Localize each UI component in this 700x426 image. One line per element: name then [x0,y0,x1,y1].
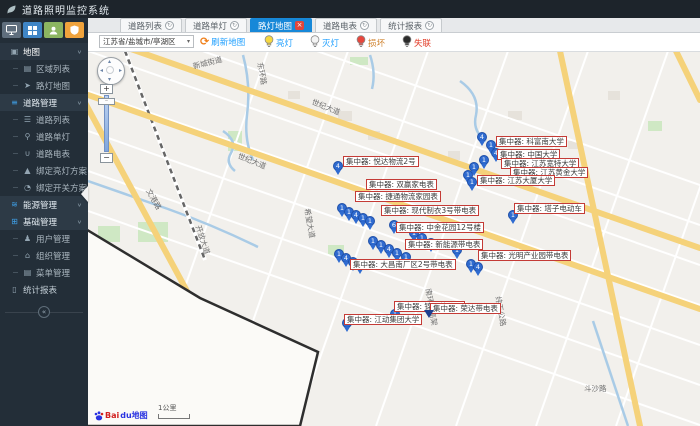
sidebar: ▣地图∨▤区域列表➤路灯地图≡道路管理∨☰道路列表⚲道路单灯∪道路电表▲绑定亮灯… [0,18,88,426]
sidebar-item-label: 绑定亮灯方案 [36,165,87,177]
map-icon: ▣ [9,47,20,56]
legend-broken[interactable]: 损坏 [356,35,385,51]
sidebar-item-label: 道路单灯 [36,131,70,143]
map-pin[interactable]: 4 [477,132,487,142]
road-name-label: 新城街道 [192,54,224,72]
concentrator-label[interactable]: 集中器: 光明产业园带电表 [478,250,571,261]
concentrator-label[interactable]: 集中器: 荣达带电表 [430,303,501,314]
legend-label: 亮灯 [276,37,293,49]
region-select[interactable]: 江苏省/盐城市/亭湖区 ▾ [99,35,194,48]
tab-label: 统计报表 [388,20,422,32]
sidebar-item-bind-switch-plan[interactable]: ◔绑定开关方案 [0,179,88,196]
tab-refresh-icon[interactable]: ↻ [360,21,369,30]
concentrator-label[interactable]: 集中器: 双赢家电表 [366,179,437,190]
legend-label: 灭灯 [322,37,339,49]
map-pin[interactable]: 1 [365,216,375,226]
sidebar-item-label: 道路管理 [23,97,57,109]
user-quick-button[interactable] [44,22,63,38]
on-bulb-icon [264,35,274,51]
sidebar-item-report[interactable]: ▯统计报表 [0,281,88,298]
concentrator-label[interactable]: 集中器: 塔子电动车 [514,203,585,214]
user-manage-icon: ♟ [22,234,33,243]
collapse-arrow-icon[interactable]: « [38,306,50,318]
sidebar-item-base-manage[interactable]: ⊞基础管理∨ [0,213,88,230]
concentrator-label[interactable]: 集中器: 悦达物流2号 [343,156,419,167]
map-toolbar: 江苏省/盐城市/亭湖区 ▾ ⟳ 刷新地图 亮灯灭灯损坏失联 [88,33,700,52]
sidebar-item-label: 道路列表 [36,114,70,126]
sidebar-item-label: 路灯地图 [36,80,70,92]
sidebar-item-label: 道路电表 [36,148,70,160]
chevron-down-icon: ∨ [77,202,82,208]
sidebar-item-label: 用户管理 [36,233,70,245]
report-icon: ▯ [9,285,20,294]
concentrator-label[interactable]: 集中器: 江苏大厦大学 [477,175,555,186]
sidebar-item-org-manage[interactable]: ⌂组织管理 [0,247,88,264]
tab-report[interactable]: 统计报表↻ [380,18,442,32]
sidebar-item-energy-manage[interactable]: ≋能源管理∨ [0,196,88,213]
tab-refresh-icon[interactable]: ↻ [230,21,239,30]
org-manage-icon: ⌂ [22,251,33,260]
tab-label: 道路电表 [323,20,357,32]
tab-label: 道路列表 [128,20,162,32]
road-name-label: 世纪大道 [236,150,268,171]
app-header: 道路照明监控系统 [0,0,700,18]
road-meter-icon: ∪ [22,149,33,158]
tab-road-meter[interactable]: 道路电表↻ [315,18,377,32]
refresh-map-button[interactable]: ⟳ 刷新地图 [200,34,245,49]
legend-on[interactable]: 亮灯 [264,35,293,51]
road-name-label: 希望大道 [302,208,318,239]
monitor-quick-button[interactable] [2,22,21,38]
direction-arrow-marker [424,310,434,318]
energy-manage-icon: ≋ [9,200,20,209]
road-name-label: 世纪大道 [310,96,342,117]
quick-icon-bar [0,18,88,42]
tab-road-list[interactable]: 道路列表↻ [120,18,182,32]
grid-icon [28,26,37,35]
sidebar-edge-collapse-handle[interactable] [81,186,88,202]
sidebar-item-lamp-map[interactable]: ➤路灯地图 [0,77,88,94]
tab-refresh-icon[interactable]: ↻ [425,21,434,30]
sidebar-item-label: 基础管理 [23,216,57,228]
tab-bar: 道路列表↻道路单灯↻路灯地图×道路电表↻统计报表↻ [88,18,700,33]
map-pin[interactable]: 4 [473,262,483,272]
sidebar-item-label: 统计报表 [23,284,57,296]
tab-label: 路灯地图 [258,20,292,32]
road-name-label: 东环路 [255,62,270,86]
tab-refresh-icon[interactable]: ↻ [165,21,174,30]
chevron-down-icon: ∨ [77,100,82,106]
sidebar-item-label: 绑定开关方案 [36,182,87,194]
sidebar-collapse-button[interactable]: « [5,306,83,319]
sidebar-item-map[interactable]: ▣地图∨ [0,43,88,60]
shield-icon [70,25,79,35]
region-list-icon: ▤ [22,64,33,73]
road-manage-icon: ≡ [9,98,20,107]
menu-manage-icon: ▤ [22,268,33,277]
region-select-value: 江苏省/盐城市/亭湖区 [103,36,176,47]
chevron-down-icon: ▾ [187,38,190,45]
monitor-icon [6,25,17,35]
bind-switch-plan-icon: ◔ [22,183,33,192]
legend-off[interactable]: 灭灯 [310,35,339,51]
user-icon [49,26,58,35]
grid-quick-button[interactable] [23,22,42,38]
shield-quick-button[interactable] [65,22,84,38]
concentrator-label[interactable]: 集中器: 新能源带电表 [405,239,483,250]
concentrator-label[interactable]: 集中器: 江动集团大学 [344,314,422,325]
sidebar-item-menu-manage[interactable]: ▤菜单管理 [0,264,88,281]
concentrator-label[interactable]: 集中器: 中金花园12号楼 [396,222,484,233]
concentrator-label[interactable]: 集中器: 捷通物流家园表 [355,191,441,202]
map-pin[interactable]: 1 [479,155,489,165]
road-name-label: 斗沙路 [584,383,607,394]
sidebar-menu: ▣地图∨▤区域列表➤路灯地图≡道路管理∨☰道路列表⚲道路单灯∪道路电表▲绑定亮灯… [0,43,88,298]
bind-light-plan-icon: ▲ [22,166,33,175]
road-name-label: 开放大道 [193,224,213,256]
concentrator-label[interactable]: 集中器: 大昌南厂区2号带电表 [350,259,456,270]
map-overlay: 新城街道东环路世纪大道世纪大道文港路开放大道希望大道南环路高架纬五公路斗沙路41… [0,0,700,426]
sidebar-item-label: 能源管理 [23,199,57,211]
close-icon[interactable]: × [295,21,304,30]
lamp-map-icon: ➤ [22,81,33,90]
sidebar-item-road-manage[interactable]: ≡道路管理∨ [0,94,88,111]
base-manage-icon: ⊞ [9,217,20,226]
sidebar-item-label: 菜单管理 [36,267,70,279]
map-pin[interactable]: 4 [333,161,343,171]
sidebar-item-user-manage[interactable]: ♟用户管理 [0,230,88,247]
sidebar-item-region-list[interactable]: ▤区域列表 [0,60,88,77]
sidebar-item-bind-light-plan[interactable]: ▲绑定亮灯方案 [0,162,88,179]
tab-lamp-map[interactable]: 路灯地图× [250,18,312,32]
sidebar-item-road-meter[interactable]: ∪道路电表 [0,145,88,162]
off-bulb-icon [310,35,320,51]
legend-label: 损坏 [368,37,385,49]
concentrator-label[interactable]: 集中器: 现代制衣3号带电表 [381,205,479,216]
sidebar-item-label: 地图 [23,46,40,58]
sidebar-item-label: 区域列表 [36,63,70,75]
leaf-logo-icon [6,4,17,15]
sidebar-item-road-list[interactable]: ☰道路列表 [0,111,88,128]
app-title: 道路照明监控系统 [22,2,110,17]
chevron-down-icon: ∨ [77,219,82,225]
concentrator-label[interactable]: 集中器: 科富南大学 [496,136,567,147]
broken-bulb-icon [356,35,366,51]
road-lamp-icon: ⚲ [22,132,33,141]
map-pin[interactable]: 1 [467,177,477,187]
refresh-icon: ⟳ [200,36,209,47]
road-list-icon: ☰ [22,115,33,124]
legend-label: 失联 [414,37,431,49]
tab-label: 道路单灯 [193,20,227,32]
road-name-label: 文港路 [143,187,164,212]
tab-road-lamp[interactable]: 道路单灯↻ [185,18,247,32]
offline-bulb-icon [402,35,412,51]
refresh-map-label: 刷新地图 [211,36,245,48]
chevron-down-icon: ∨ [77,49,82,55]
sidebar-item-label: 组织管理 [36,250,70,262]
sidebar-item-road-lamp[interactable]: ⚲道路单灯 [0,128,88,145]
legend-offline[interactable]: 失联 [402,35,431,51]
